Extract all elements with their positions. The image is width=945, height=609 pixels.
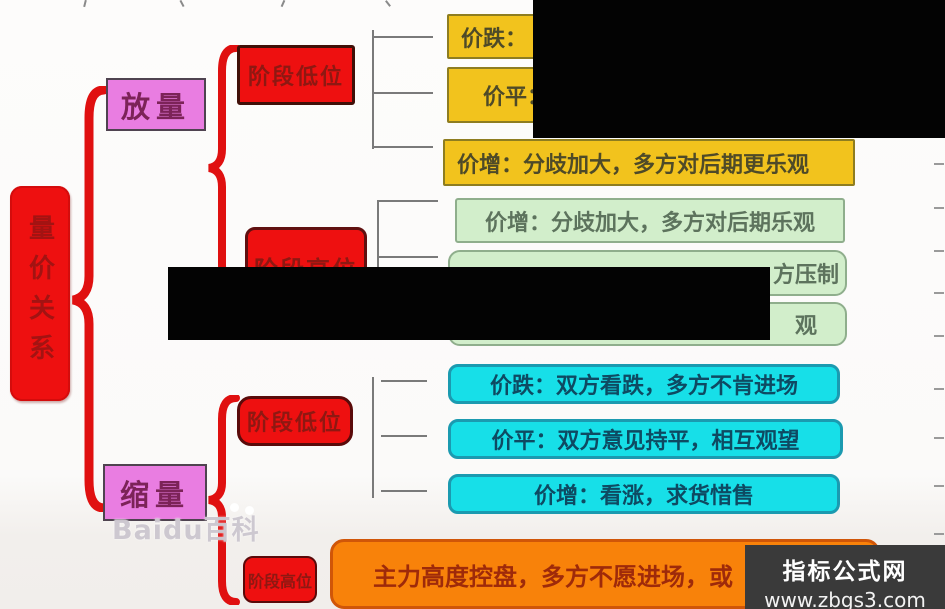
branch-node-release-volume: 放量 [106, 78, 206, 131]
redaction-block-middle [168, 267, 770, 340]
connector-line [372, 92, 433, 94]
edge-dash [934, 437, 944, 439]
shrink-volume-brace [206, 395, 240, 605]
connector-line [381, 380, 427, 382]
site-watermark-name: 指标公式网 [745, 552, 945, 586]
leaf-price-rise-cyan: 价增：看涨，求货惜售 [448, 474, 840, 514]
connector-line [377, 256, 438, 258]
edge-dash [934, 533, 944, 535]
top-edge-mark [83, 0, 87, 7]
stage-node-low-1: 阶段低位 [237, 45, 355, 105]
edge-dash [934, 207, 944, 209]
redaction-block-top [533, 0, 945, 138]
leaf-price-fall-cyan: 价跌：双方看跌，多方不肯进场 [448, 364, 840, 404]
connector-line [372, 146, 433, 148]
top-edge-mark [385, 0, 391, 7]
root-node: 量价关系 [10, 186, 70, 401]
connector-line [372, 30, 374, 149]
stage-node-low-2: 阶段低位 [237, 396, 353, 446]
top-edge-mark [179, 0, 184, 7]
leaf-price-rise-yellow: 价增：分歧加大，多方对后期更乐观 [443, 139, 855, 186]
baidu-watermark-dot [230, 503, 239, 512]
connector-line [381, 435, 427, 437]
edge-dash [934, 163, 944, 165]
edge-dash [934, 485, 944, 487]
edge-dash [934, 250, 944, 252]
connector-line [377, 200, 438, 202]
diagram-canvas: 量价关系 放量 缩量 阶段低位 阶段高位 阶段低位 阶段高位 价跌： 价平： 价… [0, 0, 945, 609]
release-volume-brace [206, 45, 240, 291]
connector-line [372, 377, 374, 498]
leaf-price-flat-cyan: 价平：双方意见持平，相互观望 [448, 419, 843, 459]
top-edge-mark [281, 0, 286, 7]
main-brace [68, 86, 110, 512]
connector-line [372, 36, 433, 38]
site-watermark: 指标公式网 www.zbgs3.com [745, 545, 945, 609]
edge-dash [934, 292, 944, 294]
baidu-watermark: Baidu百科 [112, 508, 260, 547]
site-watermark-url: www.zbgs3.com [745, 588, 945, 609]
edge-dash [934, 335, 944, 337]
connector-line [381, 490, 427, 492]
stage-node-high-2: 阶段高位 [243, 556, 317, 603]
baidu-watermark-dot [245, 506, 254, 515]
edge-dash [934, 388, 944, 390]
leaf-price-rise-green: 价增：分歧加大，多方对后期乐观 [455, 198, 845, 243]
